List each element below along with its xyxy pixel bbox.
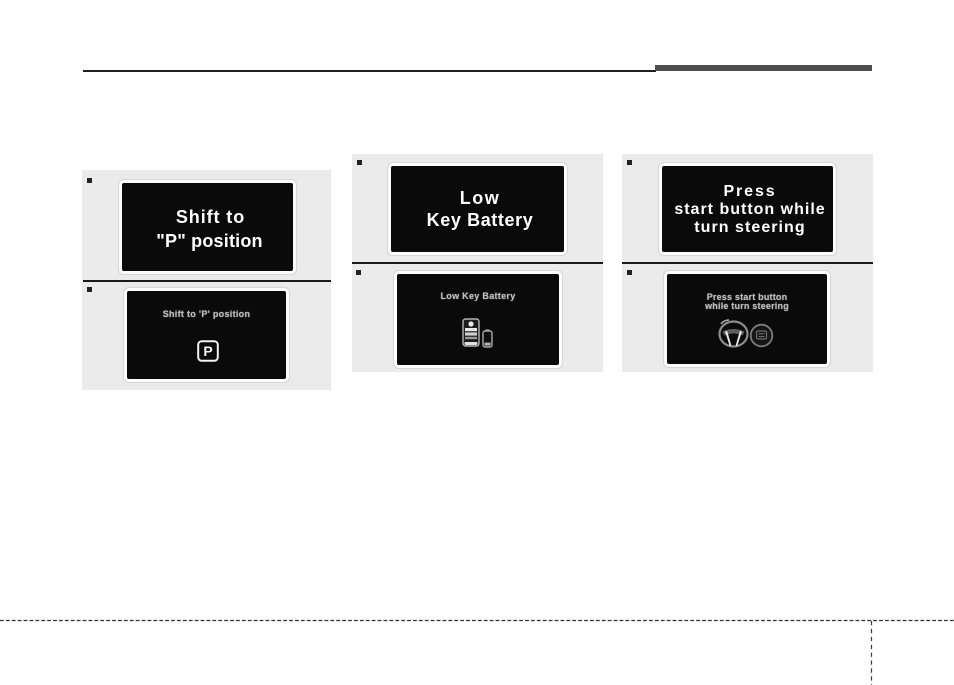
svg-text:P: P [203, 343, 212, 359]
